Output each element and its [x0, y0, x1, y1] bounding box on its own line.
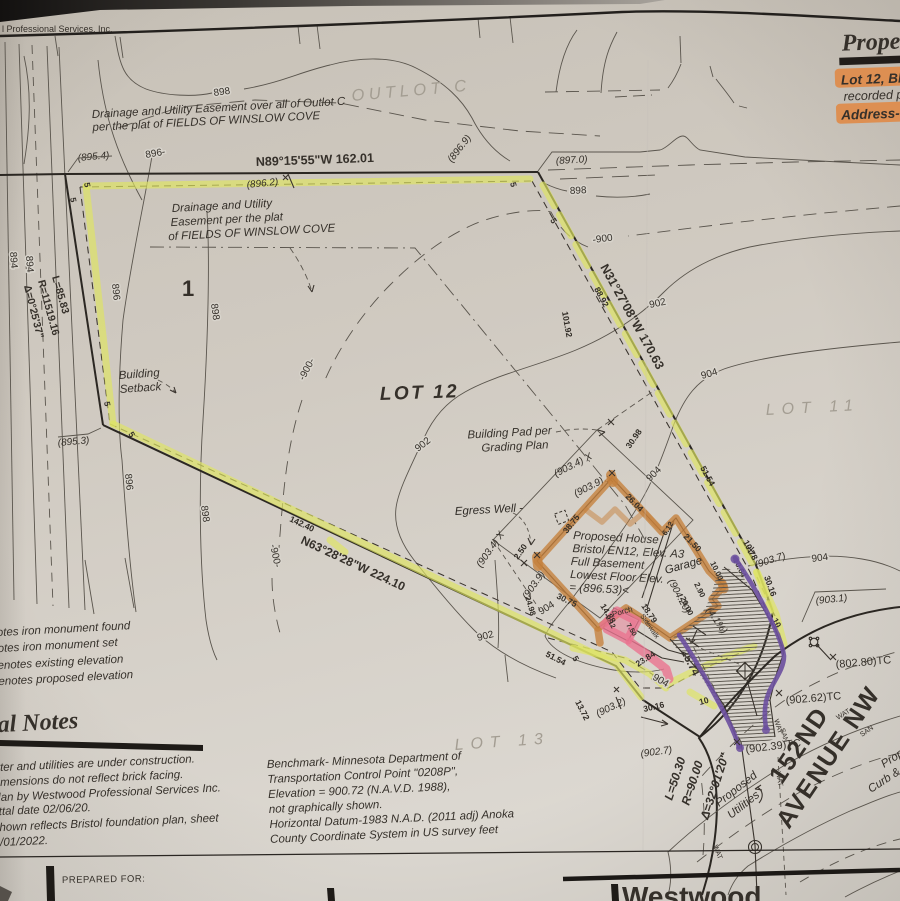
svg-text:PREPARED FOR:: PREPARED FOR: — [62, 874, 146, 886]
svg-text:896: 896 — [109, 283, 122, 301]
svg-text:898: 898 — [570, 185, 588, 197]
svg-text:l Professional Services, Inc.: l Professional Services, Inc. — [2, 24, 113, 34]
svg-text:Prope: Prope — [840, 29, 900, 57]
svg-text:/01/2022.: /01/2022. — [0, 835, 48, 849]
svg-text:Lot 12, Blc: Lot 12, Blc — [841, 70, 900, 87]
svg-text:896: 896 — [122, 473, 135, 491]
svg-text:1: 1 — [182, 276, 194, 301]
svg-text:894: 894 — [23, 255, 35, 273]
svg-text:Address- 7: Address- 7 — [840, 105, 900, 123]
svg-text:LOT 12: LOT 12 — [379, 381, 459, 405]
svg-text:(897.0): (897.0) — [556, 154, 588, 167]
svg-text:894: 894 — [7, 251, 19, 269]
svg-text:al Notes: al Notes — [0, 708, 79, 738]
svg-text:recorded p: recorded p — [843, 88, 900, 104]
svg-text:Westwood: Westwood — [622, 881, 761, 901]
